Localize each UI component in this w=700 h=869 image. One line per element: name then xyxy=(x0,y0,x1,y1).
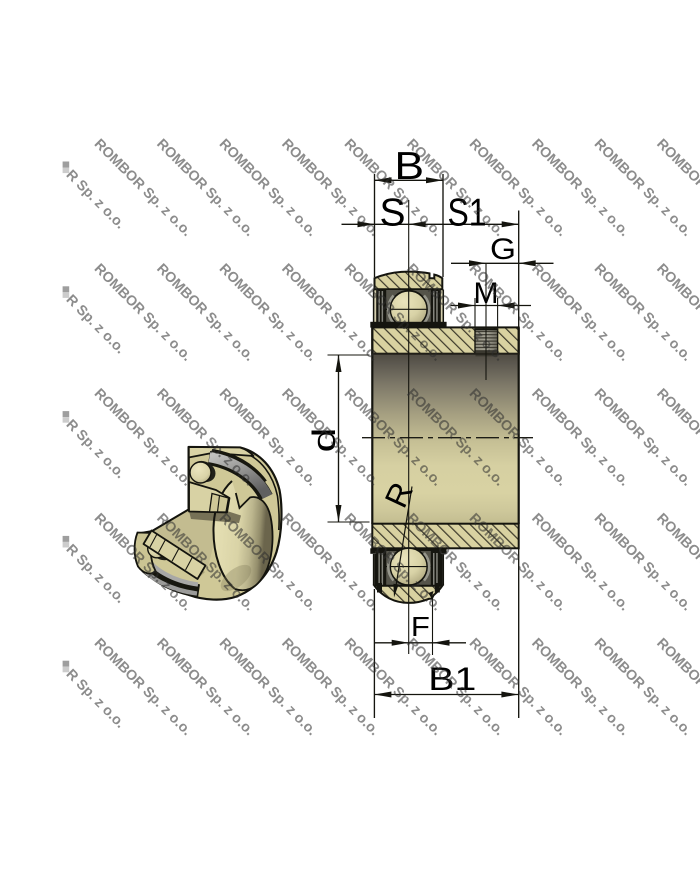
svg-text:R Sp. z o.o.: R Sp. z o.o. xyxy=(63,167,128,232)
svg-text:R Sp. z o.o.: R Sp. z o.o. xyxy=(63,417,128,482)
svg-text:R Sp. z o.o.: R Sp. z o.o. xyxy=(63,292,128,357)
svg-text:R Sp. z o.o.: R Sp. z o.o. xyxy=(63,541,128,606)
svg-text:R Sp. z o.o.: R Sp. z o.o. xyxy=(63,666,128,731)
